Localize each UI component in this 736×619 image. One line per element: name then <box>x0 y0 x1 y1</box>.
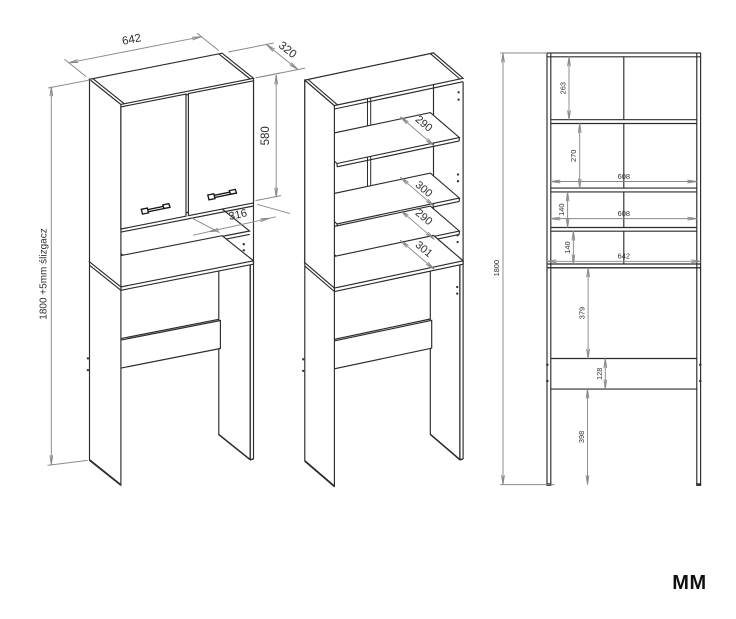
svg-text:140: 140 <box>557 204 566 216</box>
svg-text:580: 580 <box>260 126 272 145</box>
svg-text:270: 270 <box>569 150 578 162</box>
svg-text:140: 140 <box>563 241 572 253</box>
svg-text:128: 128 <box>595 368 604 380</box>
svg-text:1800 +5mm ślizgacz: 1800 +5mm ślizgacz <box>39 228 50 319</box>
svg-text:608: 608 <box>618 172 630 181</box>
svg-text:398: 398 <box>577 431 586 443</box>
svg-text:379: 379 <box>578 307 587 319</box>
svg-text:608: 608 <box>618 209 630 218</box>
svg-text:263: 263 <box>558 82 567 94</box>
svg-text:1800: 1800 <box>492 260 501 276</box>
svg-text:642: 642 <box>618 252 630 261</box>
svg-text:MM: MM <box>672 572 707 594</box>
